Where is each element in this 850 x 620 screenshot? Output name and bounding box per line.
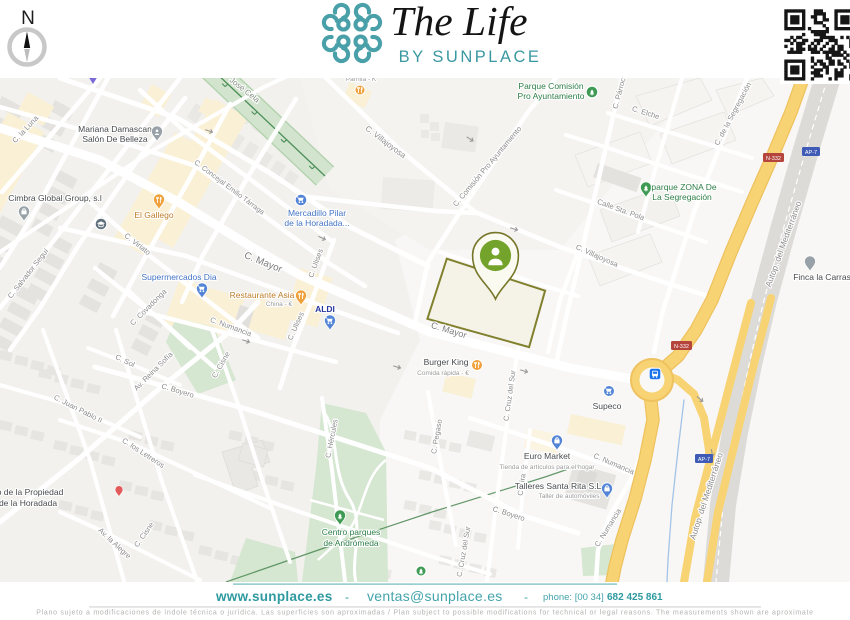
svg-text:Taller de automóviles: Taller de automóviles: [538, 493, 600, 500]
svg-text:Restaurante Asia: Restaurante Asia: [230, 290, 295, 300]
svg-text:Parque Comisión: Parque Comisión: [518, 81, 583, 91]
svg-text:Supeco: Supeco: [593, 401, 622, 411]
svg-text:-: -: [524, 590, 528, 604]
svg-text:Cimbra Global Group, s.l: Cimbra Global Group, s.l: [8, 193, 102, 203]
svg-text:682 425 861: 682 425 861: [607, 592, 663, 603]
svg-text:Burger King: Burger King: [424, 357, 469, 367]
svg-text:ventas@sunplace.es: ventas@sunplace.es: [367, 588, 503, 604]
svg-text:AP-7: AP-7: [805, 150, 817, 156]
svg-text:Talleres Santa Rita S.L: Talleres Santa Rita S.L: [515, 481, 602, 491]
svg-text:Mariana Damascan: Mariana Damascan: [78, 124, 152, 134]
svg-text:AP-7: AP-7: [698, 457, 710, 463]
svg-text:La Segregación: La Segregación: [652, 192, 712, 202]
svg-text:Finca la Carras: Finca la Carras: [793, 272, 850, 282]
svg-text:Salón De Belleza: Salón De Belleza: [82, 134, 147, 144]
svg-text:ALDI: ALDI: [315, 304, 335, 314]
svg-text:Pro Ayuntamiento: Pro Ayuntamiento: [518, 91, 585, 101]
svg-text:Supermercados Dia: Supermercados Dia: [141, 272, 216, 282]
svg-text:parque ZONA De: parque ZONA De: [651, 182, 716, 192]
svg-text:phone: [00 34]: phone: [00 34]: [543, 592, 604, 603]
svg-text:El Gallego: El Gallego: [134, 210, 173, 220]
svg-text:The Life: The Life: [390, 0, 527, 44]
svg-text:Euro Market: Euro Market: [524, 451, 571, 461]
svg-text:-: -: [345, 590, 349, 604]
svg-text:de Andrómeda: de Andrómeda: [323, 538, 379, 548]
svg-text:N-332: N-332: [674, 344, 689, 350]
svg-text:o de la Propiedad: o de la Propiedad: [0, 487, 64, 497]
svg-text:BY SUNPLACE: BY SUNPLACE: [399, 48, 542, 66]
svg-text:China - €: China - €: [266, 301, 293, 308]
svg-text:www.sunplace.es: www.sunplace.es: [215, 589, 333, 604]
svg-text:N-332: N-332: [766, 156, 781, 162]
svg-text:N: N: [21, 8, 35, 29]
svg-text:de la Horadada...: de la Horadada...: [284, 218, 349, 228]
svg-text:Mercadillo Pilar: Mercadillo Pilar: [288, 208, 346, 218]
svg-text:Plano sujeto a modificaciones: Plano sujeto a modificaciones de índole …: [36, 610, 814, 617]
svg-text:de la Horadada: de la Horadada: [0, 498, 57, 508]
svg-text:Tienda de artículos para el ho: Tienda de artículos para el hogar: [499, 464, 595, 471]
svg-text:Centro parques: Centro parques: [322, 527, 381, 537]
svg-text:Comida rápida - €: Comida rápida - €: [417, 370, 469, 377]
